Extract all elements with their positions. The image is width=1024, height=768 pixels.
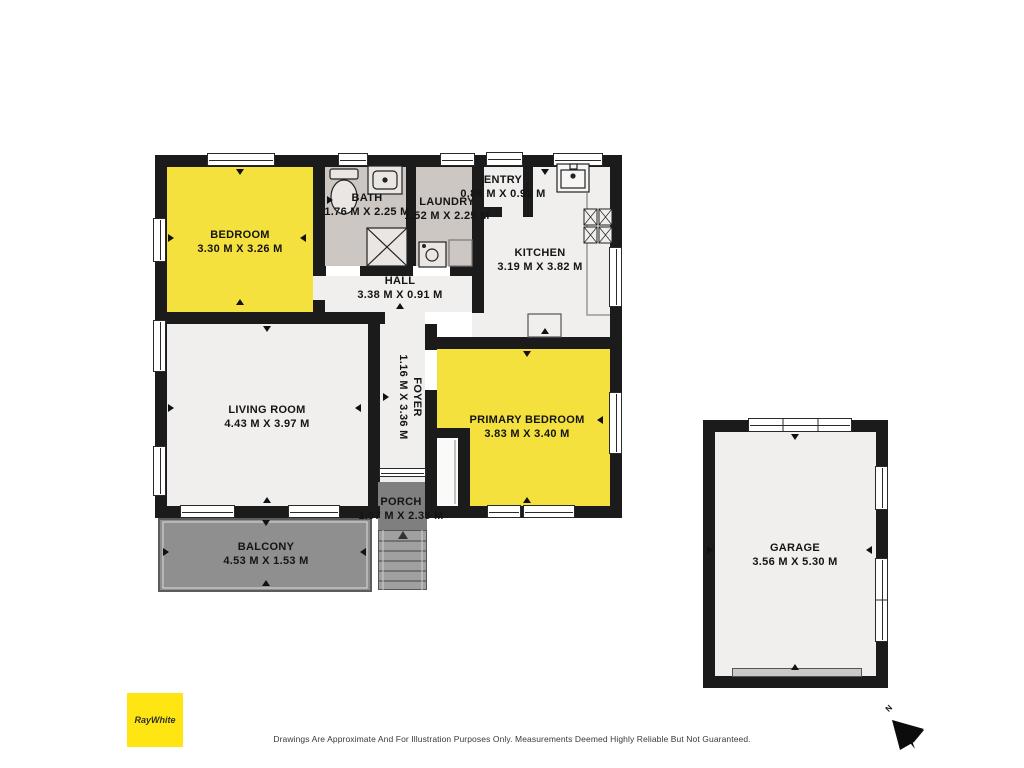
room-name: BALCONY (238, 541, 295, 553)
room-name: BEDROOM (210, 229, 270, 241)
room-name: ENTRY (484, 174, 522, 186)
room-dims: 3.83 M X 3.40 M (417, 427, 637, 441)
shower-icon (367, 228, 407, 266)
dimension-tick (791, 664, 799, 670)
dimension-tick (236, 299, 244, 305)
room-name: HALL (385, 275, 416, 287)
north-arrow-icon: N (880, 702, 932, 758)
room-dims: 0.86 M X 0.92 M (393, 187, 613, 201)
room-label-foyer: FOYER 1.16 M X 3.36 M (380, 322, 424, 472)
disclaimer-text: Drawings Are Approximate And For Illustr… (0, 734, 1024, 744)
room-name: KITCHEN (515, 247, 566, 259)
room-dims: 4.53 M X 1.53 M (156, 554, 376, 568)
room-name: PRIMARY BEDROOM (469, 414, 584, 426)
room-label-kitchen: KITCHEN 3.19 M X 3.82 M (430, 246, 650, 274)
fixtures-layer (0, 0, 1024, 768)
dimension-tick (262, 580, 270, 586)
dimension-tick (236, 169, 244, 175)
stair-treads (379, 530, 426, 590)
garage-top-window-dividers (783, 419, 818, 431)
dimension-tick (396, 303, 404, 309)
room-label-living-room: LIVING ROOM 4.43 M X 3.97 M (157, 403, 377, 431)
room-dims: 4.43 M X 3.97 M (157, 417, 377, 431)
room-label-primary-bedroom: PRIMARY BEDROOM 3.83 M X 3.40 M (417, 413, 637, 441)
room-name: FOYER (411, 377, 423, 416)
room-dims: 1.07 M X 2.35 M (291, 509, 511, 523)
stove-icon (584, 209, 612, 243)
dimension-tick (262, 520, 270, 526)
room-dims: 1.52 M X 2.25 M (337, 209, 557, 223)
dimension-tick (523, 497, 531, 503)
dimension-tick (541, 328, 549, 334)
room-name: LIVING ROOM (228, 404, 305, 416)
floor-plan: BEDROOM 3.30 M X 3.26 M BATH 1.76 M X 2.… (0, 0, 1024, 768)
dimension-tick (523, 351, 531, 357)
room-dims: 3.38 M X 0.91 M (290, 288, 510, 302)
room-dims: 3.56 M X 5.30 M (685, 555, 905, 569)
room-label-hall: HALL 3.38 M X 0.91 M (290, 274, 510, 302)
room-name: GARAGE (770, 542, 820, 554)
room-label-entry: ENTRY 0.86 M X 0.92 M (393, 173, 613, 201)
dimension-tick (263, 326, 271, 332)
room-label-porch: PORCH 1.07 M X 2.35 M (291, 495, 511, 523)
room-label-balcony: BALCONY 4.53 M X 1.53 M (156, 540, 376, 568)
dimension-tick (791, 434, 799, 440)
room-label-bedroom: BEDROOM 3.30 M X 3.26 M (130, 228, 350, 256)
room-dims: 3.19 M X 3.82 M (430, 260, 650, 274)
room-dims: 3.30 M X 3.26 M (130, 242, 350, 256)
room-dims: 1.16 M X 3.36 M (397, 354, 409, 439)
dimension-tick (263, 497, 271, 503)
room-label-garage: GARAGE 3.56 M X 5.30 M (685, 541, 905, 569)
room-name: PORCH (380, 496, 421, 508)
